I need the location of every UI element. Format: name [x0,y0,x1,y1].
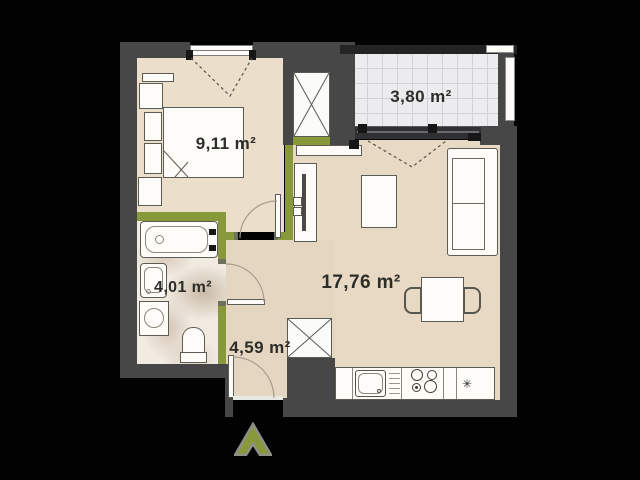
balcony-door-handle-a [358,124,367,133]
bedroom-window-glazing [192,50,251,51]
ventilation-shaft-hall [287,318,332,358]
nightstand-1 [144,112,162,141]
entrance-opening [233,400,283,417]
floor-plan: ✳ 9,11 m² 3,80 m² 17,76 m² 4,01 m² 4,59 … [0,0,640,480]
entrance-door-leaf [228,355,234,398]
freezer-icon: ✳ [462,377,472,391]
entrance-arrow-icon [234,422,272,456]
balcony-door-glazing [357,131,479,133]
wall-bathroom-top-green [137,212,226,221]
washing-machine-drum [144,308,164,328]
bedroom-window-handle-right [249,50,256,60]
toilet-bowl [182,327,205,354]
wall-bedroom-living-green [285,145,293,232]
bedroom-window-handle-left [186,50,193,60]
stove-burner-1 [411,369,423,381]
balcony-corner-trim [486,45,514,53]
hall-area-label: 4,59 m² [229,338,290,358]
bathroom-area-label: 4,01 m² [154,279,212,297]
wall-bathroom-bottom [120,364,233,378]
sink-drainer-line-5 [389,393,400,394]
kitchen-sink-drain [377,389,381,393]
radiator-bedroom [142,73,174,82]
bathtub-tap-1 [209,229,216,235]
wall-bathroom-right-green-lower [218,301,226,364]
tv-mount-1 [293,197,302,206]
toilet-tank [180,352,207,363]
sink-drainer-line-1 [389,373,400,374]
sofa-seat-divider [452,203,485,204]
wall-left [120,42,137,364]
wardrobe-bottom [138,177,162,206]
nightstand-2 [144,143,162,174]
sink-drainer-line-4 [389,388,400,389]
wall-balcony-left [340,47,355,135]
wall-below-shaft [287,358,335,417]
bedroom-door-leaf [275,194,281,238]
wall-shaft-left [285,72,293,137]
stove-burner-4 [424,380,437,393]
bedroom-area-label: 9,11 m² [196,134,256,154]
stove-burner-2 [427,370,437,380]
wall-bottom [335,400,517,417]
coffee-table [361,175,397,228]
dining-table [421,277,464,322]
wall-under-shaft-green [293,137,330,145]
wall-balcony-door-right-stub [480,126,517,145]
balcony-door-handle-c [468,133,481,141]
bathroom-door-leaf [227,299,265,305]
counter-divider-1 [352,368,353,399]
washbasin-drain [146,289,151,294]
dining-chair-right [463,287,481,314]
balcony-side-window [505,57,515,121]
balcony-door-handle-b [428,124,437,133]
wardrobe-top [139,83,163,109]
wall-right [500,135,517,417]
wall-entry-right [283,398,293,417]
balcony-door-handle-left [349,140,359,149]
counter-divider-3 [443,368,444,399]
balcony-area-label: 3,80 m² [390,87,451,107]
sink-drainer-line-2 [389,378,400,379]
tv-screen [302,174,306,231]
stove-burner-3-inner [415,386,418,389]
counter-divider-4 [456,368,457,399]
tv-mount-2 [293,207,302,216]
wall-cap-2 [218,301,226,306]
wall-cap-1 [218,259,226,264]
ventilation-shaft-top [293,72,330,137]
counter-divider-2 [401,368,402,399]
bathtub-drain [155,235,164,244]
bathtub-tap-2 [209,245,216,251]
wall-cap-3 [234,232,238,240]
dining-chair-left [404,287,422,314]
wall-bathroom-right-green-upper [218,221,226,264]
sofa-seat [452,158,485,250]
living-area-label: 17,76 m² [321,272,400,294]
sink-drainer-line-3 [389,383,400,384]
